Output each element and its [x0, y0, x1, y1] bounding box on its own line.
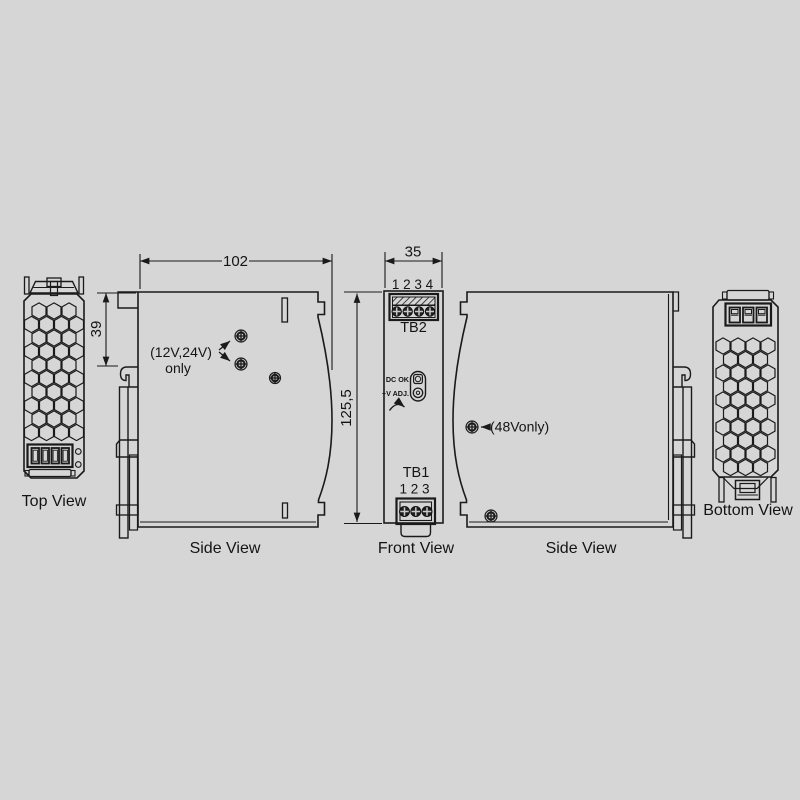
hex-vent	[70, 370, 84, 386]
hex-vent	[724, 432, 738, 448]
top-view-label: Top View	[22, 493, 87, 510]
hex-vent	[754, 432, 768, 448]
hex-vent	[731, 419, 745, 435]
hex-vent	[32, 303, 46, 319]
hex-vent	[40, 424, 54, 440]
terminal-slot-inner	[63, 450, 67, 461]
din-clip-prong	[79, 277, 84, 294]
din-clip-prong	[25, 277, 30, 294]
v-adj-pot	[413, 388, 422, 397]
hex-vent	[731, 338, 745, 354]
terminal-slot-inner	[33, 450, 37, 461]
side-view-left-label: Side View	[190, 540, 261, 557]
hex-vent	[62, 357, 76, 373]
hex-vent	[70, 424, 84, 440]
hex-vent	[32, 384, 46, 400]
hex-vent	[62, 303, 76, 319]
rear-tab	[118, 292, 138, 308]
screws	[235, 307, 497, 522]
rail-bar	[727, 291, 769, 301]
hex-vent	[47, 303, 61, 319]
rail-bar	[29, 470, 71, 477]
vent-slot	[283, 503, 288, 518]
dim-102: 102	[223, 253, 248, 270]
din-slider	[674, 455, 682, 530]
voltage-note: (48Vonly)	[490, 419, 549, 435]
side-body-inner-line	[469, 294, 669, 522]
hex-vent	[40, 343, 54, 359]
screw-icon	[466, 421, 478, 433]
terminal-screw-icon	[403, 307, 412, 316]
screw-icon	[485, 510, 497, 522]
dc-ok-label: DC OK	[386, 375, 410, 384]
note-arrow	[219, 352, 230, 361]
hex-vent	[47, 384, 61, 400]
tb1-label: TB1	[403, 465, 430, 481]
hex-vent	[724, 351, 738, 367]
hex-vent	[55, 343, 69, 359]
hex-vent	[746, 338, 760, 354]
top-view: Top View	[22, 277, 87, 510]
hex-vent	[40, 370, 54, 386]
hex-vent	[731, 392, 745, 408]
technical-drawing-page: Top View (12V,24V) only Side View 1 2 3 …	[0, 0, 800, 800]
tb1-pin-numbers: 1 2 3	[399, 482, 429, 497]
hex-vent	[32, 411, 46, 427]
hex-vent	[754, 405, 768, 421]
technical-drawing: Top View (12V,24V) only Side View 1 2 3 …	[0, 0, 800, 800]
hex-vent	[47, 330, 61, 346]
din-clip-latch	[47, 278, 61, 287]
terminal-slots	[32, 448, 70, 464]
hex-vent	[55, 370, 69, 386]
din-clip-prong	[719, 478, 724, 503]
hex-vent	[40, 397, 54, 413]
hex-vent	[724, 405, 738, 421]
hex-vent	[716, 365, 730, 381]
screw-icon	[270, 373, 281, 384]
hex-vent	[739, 405, 753, 421]
hex-vent	[761, 446, 775, 462]
hex-vent	[739, 378, 753, 394]
hex-vent	[746, 365, 760, 381]
terminal-slot-inner	[732, 310, 739, 314]
side-body	[453, 292, 673, 527]
dim-35: 35	[405, 244, 422, 261]
hex-vent	[724, 459, 738, 475]
hex-vent	[62, 384, 76, 400]
vent-honeycomb	[25, 303, 84, 441]
terminal-screw-icon	[425, 307, 434, 316]
voltage-note-line2: only	[165, 360, 191, 376]
hex-vent	[55, 316, 69, 332]
bottom-view: Bottom View	[703, 291, 793, 520]
dim-125-5: 125,5	[338, 389, 355, 427]
hex-vent	[716, 338, 730, 354]
terminal-screw-icon	[411, 507, 421, 517]
din-hook	[673, 367, 691, 387]
hex-vent	[746, 392, 760, 408]
hex-vent	[739, 432, 753, 448]
dim-39: 39	[88, 321, 105, 338]
front-view-label: Front View	[378, 540, 455, 557]
hex-vent	[716, 446, 730, 462]
hex-vent	[724, 378, 738, 394]
hex-vent	[731, 446, 745, 462]
terminal-slot-inner	[53, 450, 57, 461]
hex-vent	[761, 392, 775, 408]
din-slider	[130, 455, 138, 530]
vent-honeycomb	[716, 338, 775, 476]
hex-vent	[754, 378, 768, 394]
hex-vent	[32, 330, 46, 346]
hex-vent	[754, 459, 768, 475]
hex-vent	[746, 419, 760, 435]
v-adj-pot-slot	[416, 391, 419, 394]
terminal-screw-icon	[400, 507, 410, 517]
front-foot	[401, 525, 431, 537]
hex-vent	[25, 343, 39, 359]
side-view-right-label: Side View	[546, 540, 617, 557]
hex-vent	[25, 397, 39, 413]
rear-lip	[673, 292, 679, 311]
rail-bar-cap	[769, 292, 774, 299]
note-arrow	[219, 341, 230, 350]
hex-vent	[716, 392, 730, 408]
terminal-slot-inner	[759, 310, 766, 314]
mount-hole	[76, 449, 82, 455]
terminal-screw-icon	[414, 307, 423, 316]
hex-vent	[739, 351, 753, 367]
bottom-view-label: Bottom View	[703, 502, 793, 519]
hex-vent	[62, 411, 76, 427]
hex-vent	[70, 316, 84, 332]
terminal-screw-icon	[392, 307, 401, 316]
terminal-slot-inner	[43, 450, 47, 461]
hex-vent	[47, 357, 61, 373]
hex-vent	[70, 343, 84, 359]
hex-vent	[761, 365, 775, 381]
voltage-note-line1: (12V,24V)	[150, 344, 212, 360]
hex-vent	[32, 357, 46, 373]
tb2-pin-numbers: 1 2 3 4	[392, 277, 434, 292]
dc-ok-led-dot	[415, 376, 420, 381]
mount-hole	[76, 462, 82, 468]
screw-icon	[235, 358, 247, 370]
hex-vent	[25, 370, 39, 386]
hex-vent	[746, 446, 760, 462]
hex-vent	[55, 424, 69, 440]
hex-vent	[716, 419, 730, 435]
hex-vent	[761, 338, 775, 354]
vent-slot	[282, 298, 288, 322]
hex-vent	[731, 365, 745, 381]
hex-vent	[40, 316, 54, 332]
hex-vent	[25, 424, 39, 440]
terminal-slots	[730, 308, 768, 323]
hex-vent	[55, 397, 69, 413]
rail-bar-cap	[723, 292, 728, 299]
hex-vent	[754, 351, 768, 367]
terminal-screw-icon	[422, 507, 432, 517]
din-hook	[121, 367, 139, 387]
adjust-arrow	[390, 404, 405, 410]
hex-vent	[761, 419, 775, 435]
v-adj-label: +V ADJ.	[382, 389, 409, 398]
tb2-label: TB2	[400, 320, 427, 336]
side-view-left: (12V,24V) only Side View	[117, 292, 333, 557]
hex-vent	[25, 316, 39, 332]
hex-vent	[70, 397, 84, 413]
side-body	[138, 292, 332, 527]
hex-vent	[739, 459, 753, 475]
screw-icon	[235, 330, 247, 342]
din-clip-prong	[771, 478, 776, 503]
tb2-hatch	[393, 297, 436, 305]
hex-vent	[62, 330, 76, 346]
terminal-slot-inner	[745, 310, 752, 314]
hex-vent	[47, 411, 61, 427]
